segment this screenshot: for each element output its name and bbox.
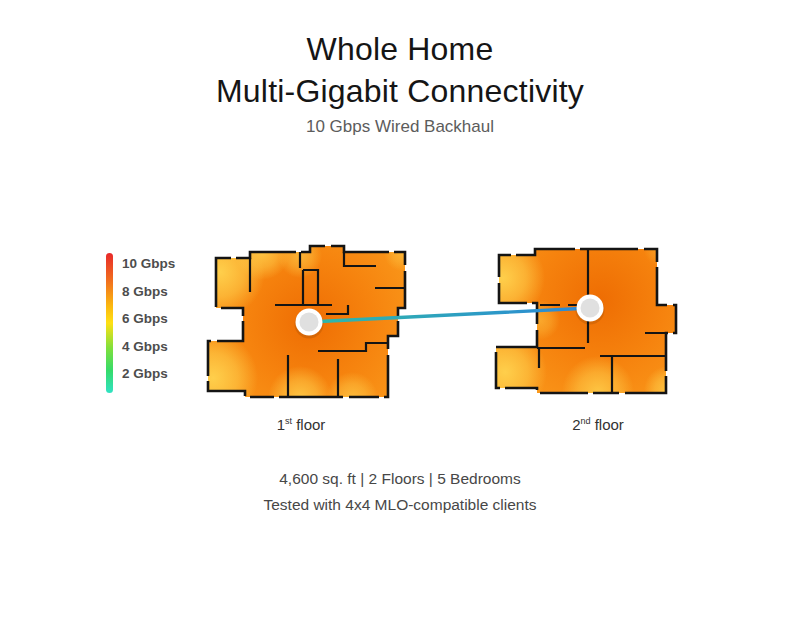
legend-gradient-bar <box>106 253 113 393</box>
home-specs-text: 4,600 sq. ft | 2 Floors | 5 Bedrooms <box>0 470 800 488</box>
floor2-word: floor <box>591 416 624 433</box>
legend-item-8gbps: 8 Gbps <box>122 285 175 299</box>
legend-item-10gbps: 10 Gbps <box>122 257 175 271</box>
test-conditions-text: Tested with 4x4 MLO-compatible clients <box>0 496 800 514</box>
floor1-ordinal: st <box>285 416 292 426</box>
floorplan-1-heatmap <box>168 224 420 430</box>
legend-item-6gbps: 6 Gbps <box>122 312 175 326</box>
router-node-body <box>300 313 319 332</box>
heatmap-diagram <box>0 0 800 640</box>
floor1-word: floor <box>292 416 325 433</box>
marketing-infographic: Whole Home Multi-Gigabit Connectivity 10… <box>0 0 800 640</box>
speed-legend: 10 Gbps 8 Gbps 6 Gbps 4 Gbps 2 Gbps <box>122 257 175 381</box>
floor1-number: 1 <box>277 416 285 433</box>
router-node-body <box>581 299 600 318</box>
legend-item-2gbps: 2 Gbps <box>122 367 175 381</box>
floor1-caption: 1st floor <box>241 416 361 433</box>
floor2-caption: 2nd floor <box>538 416 658 433</box>
floor2-ordinal: nd <box>580 416 590 426</box>
legend-item-4gbps: 4 Gbps <box>122 340 175 354</box>
floorplan-2-heatmap <box>461 234 692 428</box>
